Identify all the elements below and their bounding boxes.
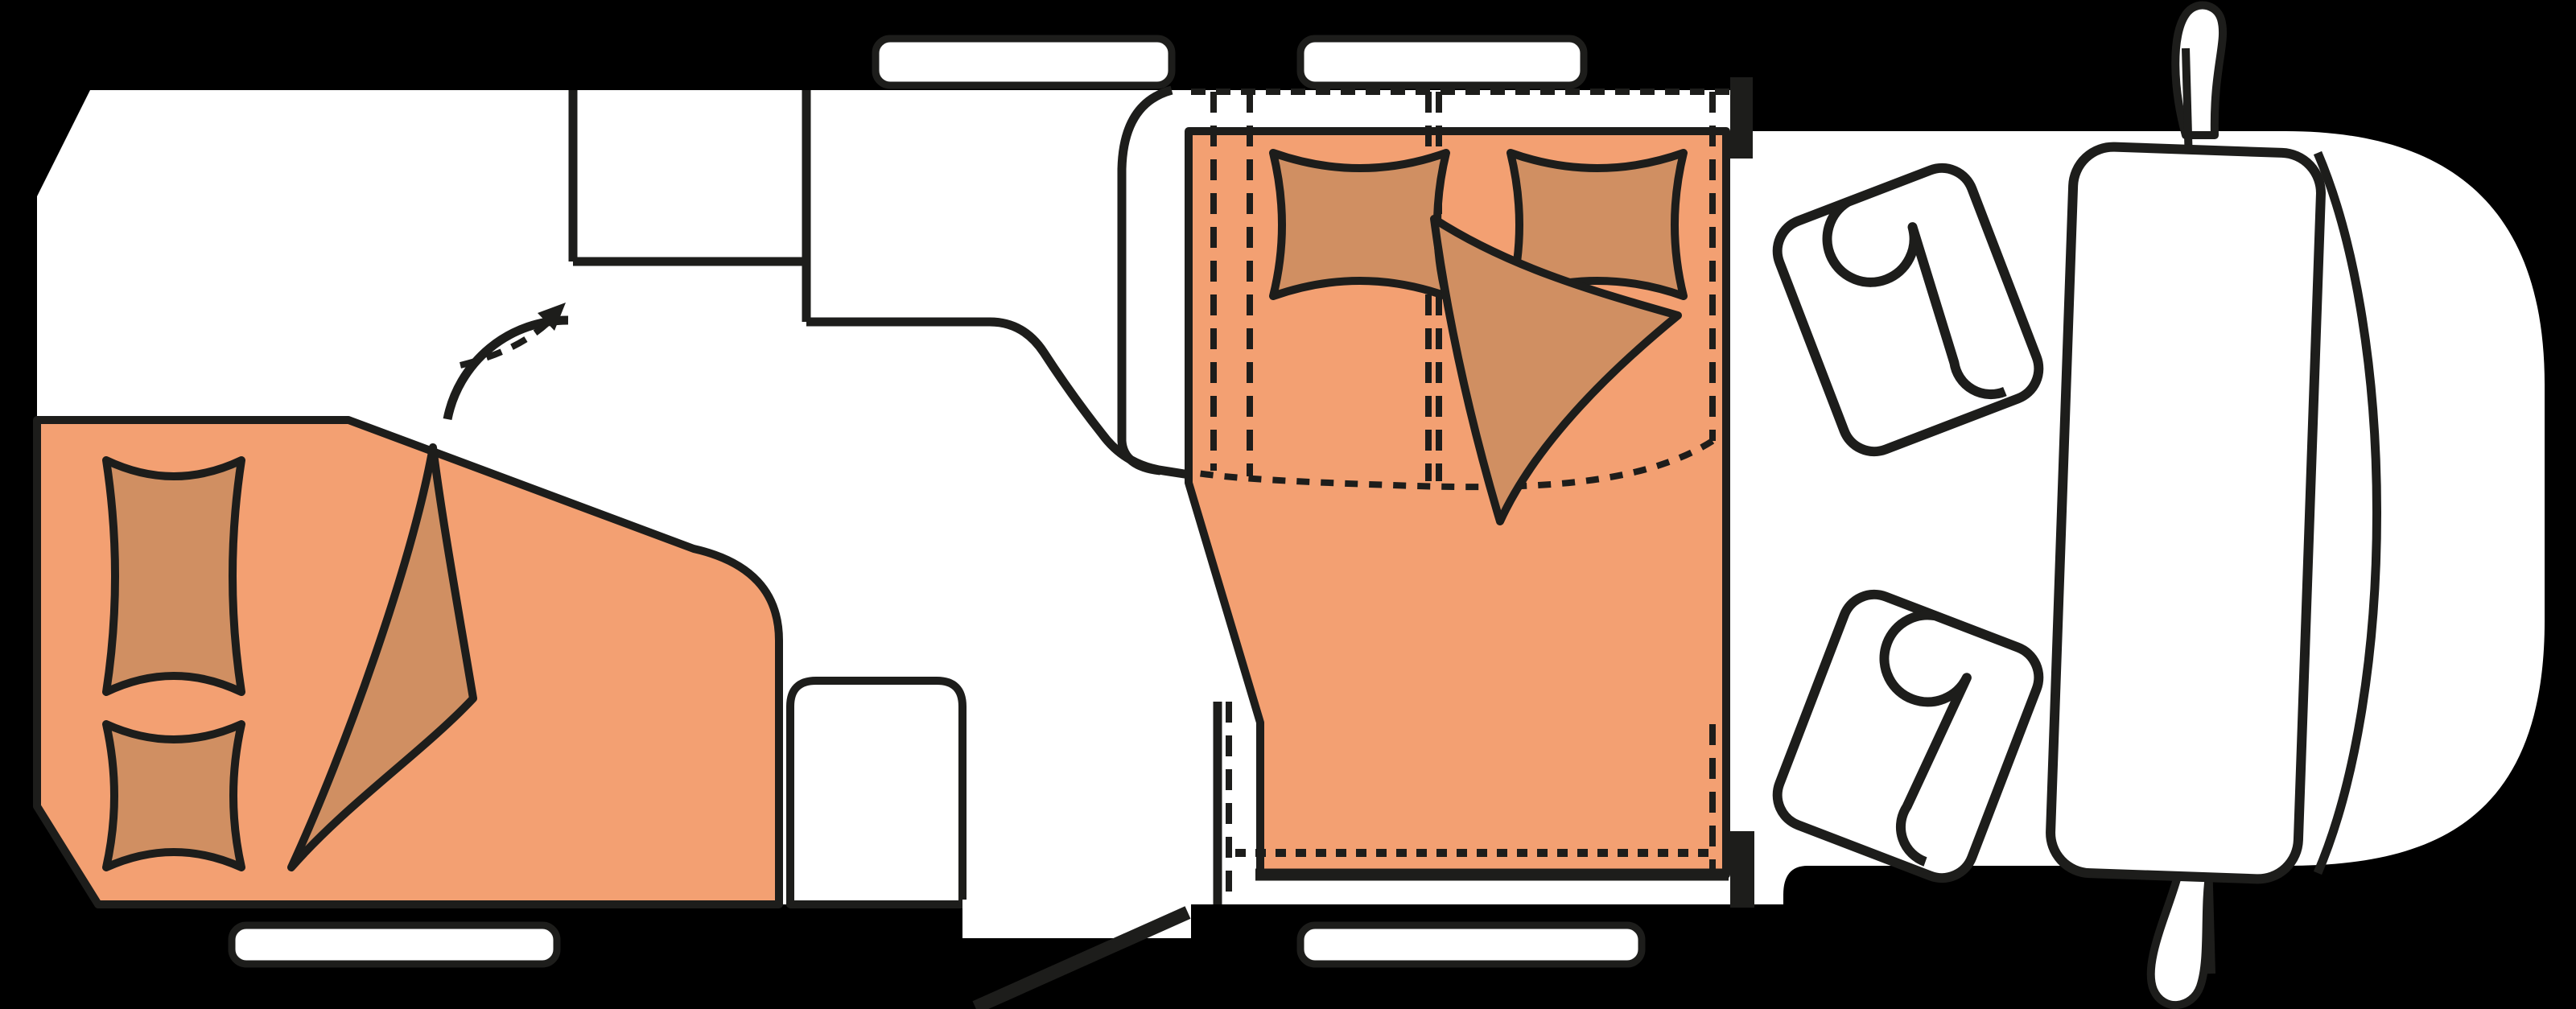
drop-bed-pillow-left [1273, 153, 1446, 296]
window-top-bed [1300, 39, 1584, 85]
side-bench [790, 681, 962, 904]
mirror-bottom-icon [2151, 871, 2210, 1005]
body-step-top [1730, 77, 1753, 159]
window-bottom-dinette [1300, 925, 1642, 964]
body-step-bottom [1730, 831, 1754, 908]
window-top-kitchen [876, 39, 1172, 85]
window-bottom-rear [232, 925, 557, 964]
floorplan-canvas [0, 0, 2576, 1009]
rear-bed-pillow-top [106, 460, 241, 692]
dashboard [2049, 146, 2322, 880]
rear-bed-pillow-bottom [106, 724, 241, 867]
floorplan-svg [0, 0, 2576, 1009]
